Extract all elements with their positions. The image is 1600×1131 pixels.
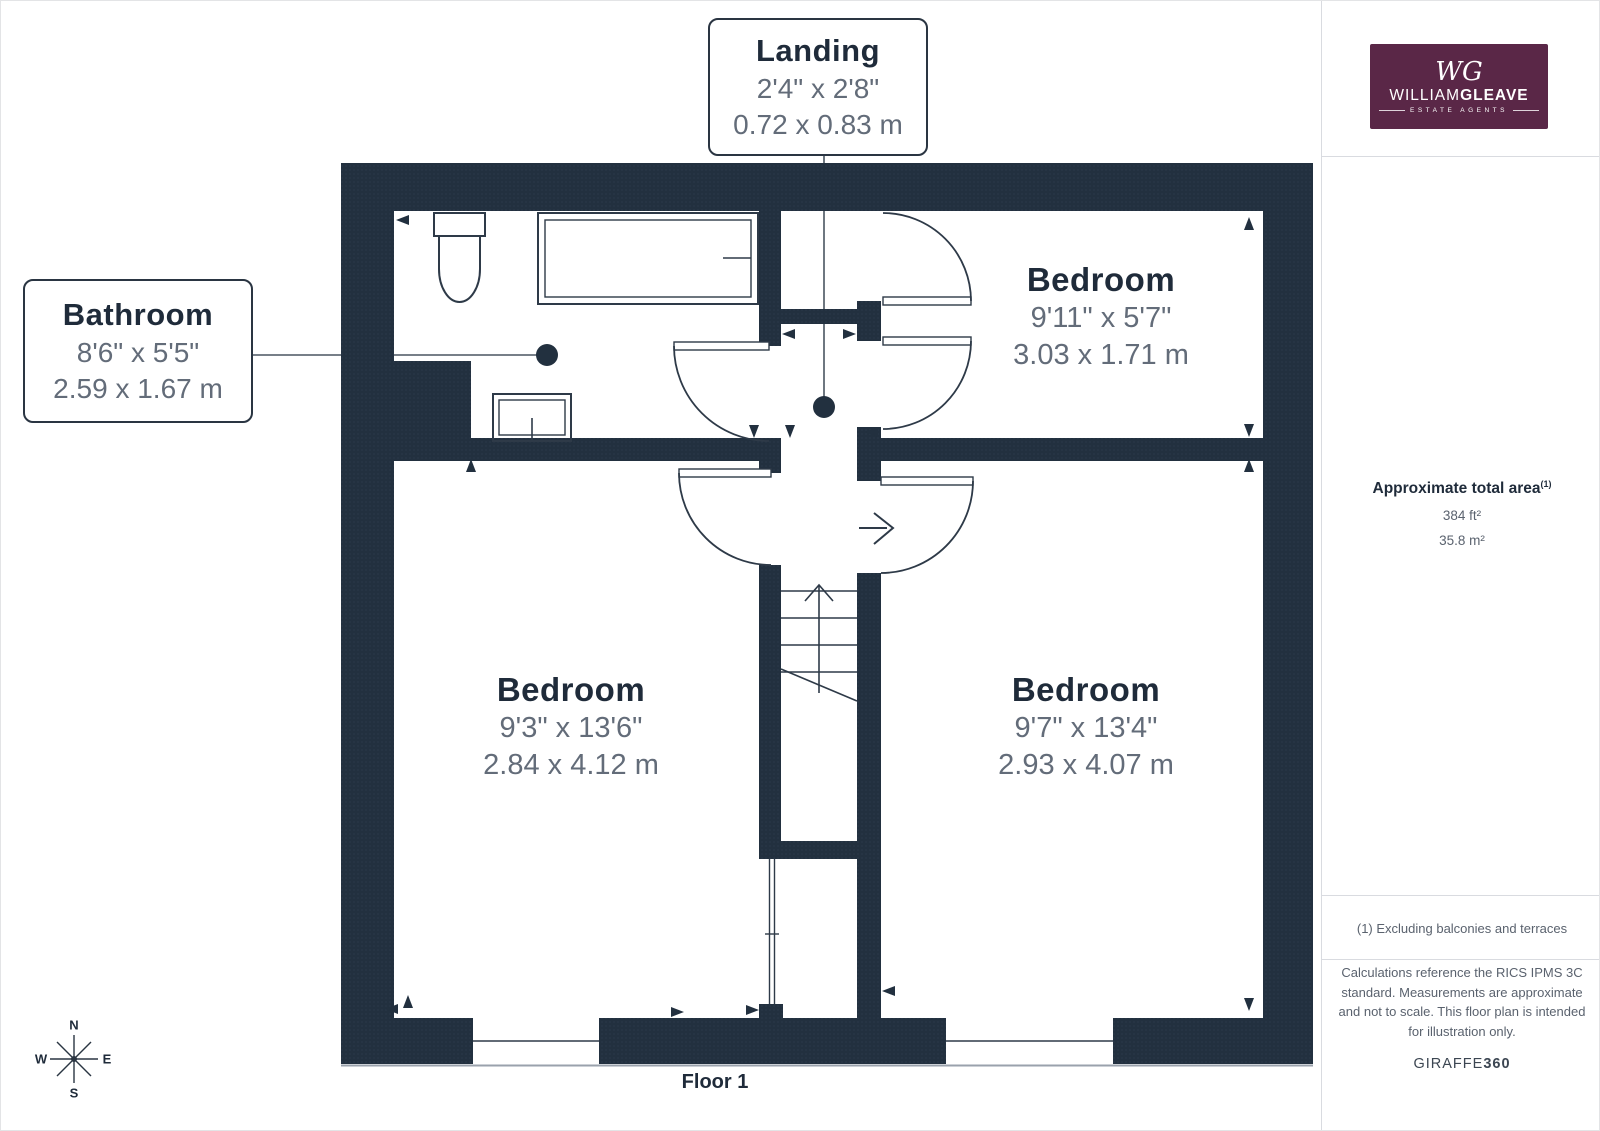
agency-tagline: ESTATE AGENTS — [1379, 107, 1539, 114]
leader-dots — [536, 344, 835, 418]
bedroom-left-label: Bedroom 9'3" x 13'6" 2.84 x 4.12 m — [483, 669, 659, 784]
compass-west-label: W — [35, 1052, 47, 1067]
room-imperial: 8'6" x 5'5" — [25, 337, 251, 369]
floorplan-drawing — [1, 1, 1321, 1131]
landing-callout: Landing 2'4" x 2'8" 0.72 x 0.83 m — [708, 18, 928, 156]
room-imperial: 9'11" x 5'7" — [1013, 300, 1189, 337]
room-metric: 2.93 x 4.07 m — [998, 747, 1174, 784]
floor-label: Floor 1 — [682, 1071, 749, 1094]
room-imperial: 2'4" x 2'8" — [710, 73, 926, 105]
info-sidebar: WG WILLIAMGLEAVE ESTATE AGENTS Approxima… — [1321, 1, 1600, 1131]
agency-name: WILLIAMGLEAVE — [1389, 87, 1528, 104]
total-area-m: 35.8 m² — [1322, 533, 1600, 548]
room-name: Landing — [710, 33, 926, 69]
toilet-fixture — [434, 213, 485, 302]
compass-rose-icon — [50, 1035, 98, 1083]
total-area-title-text: Approximate total area — [1373, 480, 1541, 497]
entry-arrow-icon — [859, 513, 893, 544]
total-area-ft: 384 ft² — [1322, 508, 1600, 523]
sidebar-divider — [1322, 959, 1600, 960]
room-name: Bedroom — [998, 669, 1174, 710]
room-name: Bedroom — [483, 669, 659, 710]
stairs — [781, 585, 857, 701]
bathroom-callout: Bathroom 8'6" x 5'5" 2.59 x 1.67 m — [23, 279, 253, 423]
room-name: Bedroom — [1013, 259, 1189, 300]
room-metric: 2.59 x 1.67 m — [25, 373, 251, 405]
floorplan-page: N S W E Landing 2'4" x 2'8" 0.72 x 0.83 … — [0, 0, 1600, 1131]
total-area-title: Approximate total area(1) — [1322, 479, 1600, 498]
room-imperial: 9'7" x 13'4" — [998, 710, 1174, 747]
compass-north-label: N — [69, 1018, 78, 1033]
balcony-footnote: (1) Excluding balconies and terraces — [1337, 919, 1587, 939]
room-metric: 2.84 x 4.12 m — [483, 747, 659, 784]
agency-logo: WG WILLIAMGLEAVE ESTATE AGENTS — [1370, 44, 1548, 129]
thin-partition — [765, 859, 779, 1004]
total-area-footnote-marker: (1) — [1540, 479, 1551, 489]
sink-fixture — [493, 394, 571, 441]
total-area-block: Approximate total area(1) 384 ft² 35.8 m… — [1322, 479, 1600, 548]
agency-name-bold: GLEAVE — [1460, 87, 1529, 104]
compass-south-label: S — [70, 1086, 79, 1101]
provider-logo: GIRAFFE360 — [1322, 1056, 1600, 1072]
provider-name-bold: 360 — [1483, 1056, 1510, 1072]
compass-east-label: E — [103, 1052, 112, 1067]
disclaimer-text: Calculations reference the RICS IPMS 3C … — [1337, 963, 1587, 1041]
agency-monogram-icon: WG — [1435, 59, 1483, 85]
provider-name-regular: GIRAFFE — [1413, 1056, 1483, 1072]
bedroom-top-label: Bedroom 9'11" x 5'7" 3.03 x 1.71 m — [1013, 259, 1189, 374]
room-name: Bathroom — [25, 297, 251, 333]
sidebar-divider — [1322, 156, 1600, 157]
bedroom-right-label: Bedroom 9'7" x 13'4" 2.93 x 4.07 m — [998, 669, 1174, 784]
bathtub-fixture — [538, 213, 758, 304]
room-imperial: 9'3" x 13'6" — [483, 710, 659, 747]
room-metric: 3.03 x 1.71 m — [1013, 337, 1189, 374]
room-metric: 0.72 x 0.83 m — [710, 109, 926, 141]
sidebar-divider — [1322, 895, 1600, 896]
agency-name-regular: WILLIAM — [1389, 87, 1460, 104]
